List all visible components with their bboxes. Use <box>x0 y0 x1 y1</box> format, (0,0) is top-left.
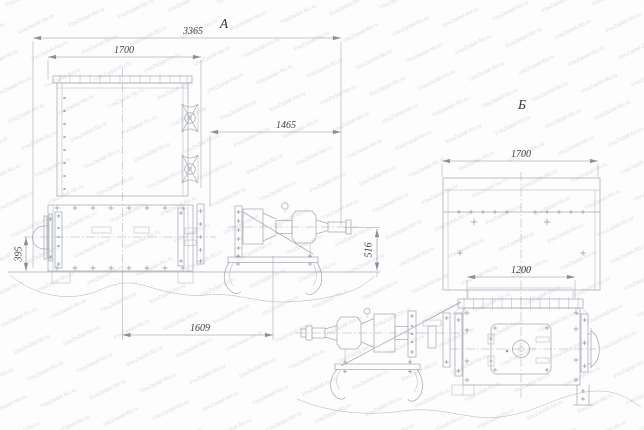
dim-body-width: 1700 <box>511 149 531 160</box>
dim-upper-offset: 1465 <box>276 120 296 131</box>
dim-outlet-width: 1200 <box>511 265 531 276</box>
technical-drawing: VseZadali-No.ru VseZadali-No.ru A <box>0 0 644 430</box>
view-b-label: Б <box>517 97 526 112</box>
dim-overall-length: 3365 <box>182 26 203 37</box>
dim-axis-height: 516 <box>364 243 375 258</box>
view-a-label: A <box>219 16 229 31</box>
dim-box-width: 1700 <box>114 45 134 56</box>
watermark-layer <box>0 0 644 430</box>
dim-left-axis-height: 395 <box>14 247 25 263</box>
drawing-sheet: VseZadali-No.ru VseZadali-No.ru A <box>0 0 644 430</box>
dim-base-span: 1609 <box>190 323 210 334</box>
